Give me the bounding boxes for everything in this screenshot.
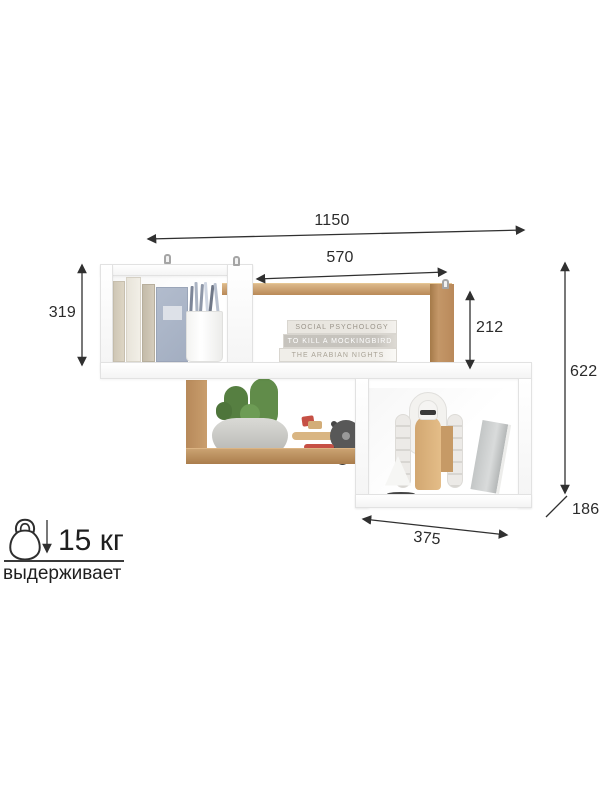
lower-oak-shelf [186, 448, 369, 464]
load-divider [4, 560, 124, 562]
dimension-label-right-drop: 212 [476, 319, 503, 337]
right-box-left-panel [355, 378, 369, 508]
wall-hanger-icon [233, 256, 240, 266]
stacked-book: THE ARABIAN NIGHTS [279, 348, 397, 362]
dim-line-570 [257, 272, 446, 279]
kettlebell-icon [8, 515, 42, 562]
dimension-label-depth: 186 [572, 501, 599, 519]
load-capacity-caption: выдерживает [3, 563, 121, 585]
book-spine [126, 277, 141, 362]
dimension-label-total-width: 1150 [302, 212, 362, 230]
book-title: THE ARABIAN NIGHTS [292, 352, 385, 359]
stacked-book: SOCIAL PSYCHOLOGY [287, 320, 397, 334]
long-middle-shelf [100, 362, 532, 379]
shelf-scene: SOCIAL PSYCHOLOGY TO KILL A MOCKINGBIRD … [0, 0, 600, 800]
upper-oak-shelf [222, 283, 452, 295]
dimension-label-left-height: 319 [40, 304, 76, 322]
stacked-book: TO KILL A MOCKINGBIRD [283, 334, 397, 348]
top-box-right-panel [227, 264, 253, 372]
book-title: SOCIAL PSYCHOLOGY [295, 324, 388, 331]
book-title: TO KILL A MOCKINGBIRD [288, 338, 393, 345]
book-spine [113, 281, 125, 362]
dimension-label-right-box-width: 375 [403, 528, 451, 551]
pencil-cup [186, 311, 223, 362]
top-box-left-panel [100, 264, 113, 372]
dimension-label-upper-shelf: 570 [312, 249, 368, 267]
book-spine [142, 284, 155, 362]
right-box-bottom-panel [355, 494, 532, 508]
wall-hanger-icon [442, 279, 449, 289]
load-capacity-value: 15 кг [58, 524, 124, 558]
dimension-label-total-height: 622 [570, 363, 597, 381]
book-cover-label [163, 306, 182, 320]
dim-line-1150 [148, 230, 524, 239]
right-box-right-panel [518, 378, 532, 508]
dim-line-186 [546, 496, 567, 517]
wall-hanger-icon [164, 254, 171, 264]
book-front-cover [156, 287, 188, 362]
